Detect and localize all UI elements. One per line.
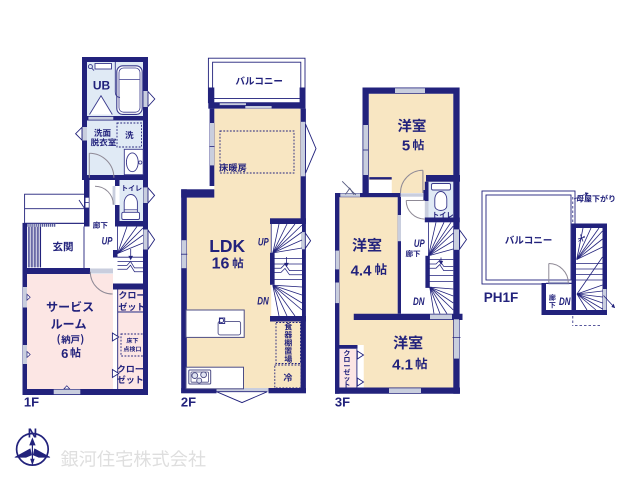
svg-text:UP: UP <box>258 236 269 248</box>
svg-text:6: 6 <box>61 346 68 361</box>
svg-text:1F: 1F <box>24 395 39 410</box>
svg-text:3F: 3F <box>335 395 350 410</box>
svg-text:LDK: LDK <box>209 236 245 256</box>
svg-text:16: 16 <box>212 255 230 272</box>
svg-text:DN: DN <box>257 296 269 308</box>
svg-text:4.4: 4.4 <box>351 262 373 279</box>
svg-text:4.1: 4.1 <box>392 357 413 374</box>
svg-text:UB: UB <box>93 79 111 93</box>
svg-text:5: 5 <box>402 138 410 155</box>
svg-text:N: N <box>28 426 37 441</box>
svg-text:PH1F: PH1F <box>484 290 519 305</box>
svg-text:DN: DN <box>559 296 571 308</box>
svg-text:UP: UP <box>414 238 425 250</box>
svg-text:UP: UP <box>102 236 113 248</box>
svg-text:2F: 2F <box>181 395 196 410</box>
svg-text:DN: DN <box>413 296 425 308</box>
